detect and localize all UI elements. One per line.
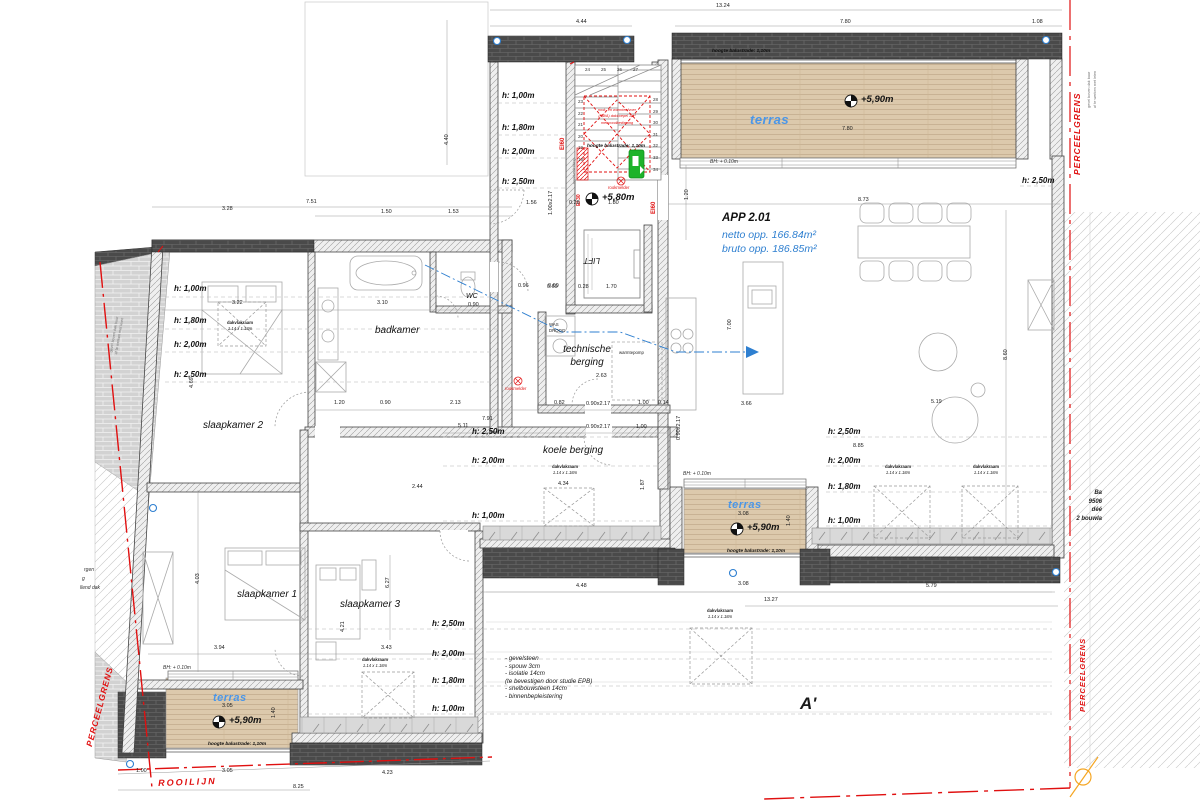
roof-window-label: dakvlakraam xyxy=(698,608,742,613)
dim-label-v: 6.27 xyxy=(385,577,391,588)
height-label: h: 1,00m xyxy=(472,511,504,520)
adjacent-roof-outline xyxy=(305,2,488,176)
dim-label: 0.96 xyxy=(518,283,529,289)
facade-marker-icon xyxy=(730,570,737,577)
stair-numbers-right: 28293031323334 xyxy=(653,94,658,175)
perceelgrens-right-top: PERCEELGRENS xyxy=(1072,93,1082,175)
room-koele-berging: koele berging xyxy=(543,445,603,456)
dim-label: 4.48 xyxy=(576,583,587,589)
roof-window-size: 1.14 x 1.18m xyxy=(876,470,920,475)
balustrade-note-1: hoogte balustrade: 1,10m xyxy=(712,49,770,54)
stair-numbers-left: 232221201918 xyxy=(578,96,583,166)
roof-window-size: 1.14 x 1.18m xyxy=(218,326,262,331)
rooilijn-label: ROOILIJN xyxy=(158,776,217,788)
dim-label: 3.05 xyxy=(222,768,233,774)
level-terras2: +5,90m xyxy=(747,522,780,533)
facade-marker-icon xyxy=(127,761,134,768)
dim-label: 3.43 xyxy=(381,645,392,651)
dim-label: 3.94 xyxy=(214,645,225,651)
dim-label: 8.85 xyxy=(853,443,864,449)
perceelgrens-right-bottom: PERCEELGRENS xyxy=(1078,638,1087,712)
boundary-note: af te werken met leien xyxy=(1093,71,1097,108)
bh-note-1: BH: + 0.10m xyxy=(710,159,738,165)
dim-label: 1.56 xyxy=(526,200,537,206)
room-technische-berging-1: technische xyxy=(552,344,622,355)
height-label: h: 2,00m xyxy=(502,147,534,156)
rookmelder-label: rookmelder xyxy=(608,185,630,190)
balustrade-top xyxy=(680,60,1016,63)
dim-label: 1.00 xyxy=(638,400,649,406)
bh-note-2: BH: + 0.10m xyxy=(683,471,711,477)
level-terras3: +5,90m xyxy=(229,715,262,726)
room-slaapkamer1: slaapkamer 1 xyxy=(237,589,297,600)
height-label: h: 2,00m xyxy=(828,456,860,465)
elevation-symbol-terras1 xyxy=(845,95,857,107)
room-slaapkamer2: slaapkamer 2 xyxy=(203,420,263,431)
dim-label: 3.28 xyxy=(222,206,233,212)
exit-sign-icon xyxy=(629,150,644,178)
fire-rating-ei60: EI60 xyxy=(560,138,566,150)
height-label: h: 2,00m xyxy=(432,649,464,658)
dim-label: 0.60 xyxy=(547,284,558,290)
dim-label: 3.10 xyxy=(377,300,388,306)
balustrade-note-4: hoogte balustrade: 1,10m xyxy=(208,742,266,747)
dim-label-v: 1.40 xyxy=(271,707,277,718)
dim-label-v: 1.87 xyxy=(640,479,646,490)
wc-width: 0.90 xyxy=(468,302,479,308)
elevation-symbol-terras2 xyxy=(731,523,743,535)
balustrade-bottom xyxy=(166,749,298,752)
height-label: h: 2,50m xyxy=(432,619,464,628)
dim-label-v: 4.40 xyxy=(444,134,450,145)
balustrade-note-2: hoogte balustrade: 1,10m xyxy=(585,144,647,149)
dim-label: 3.05 xyxy=(222,703,233,709)
roof-window-size: 1.14 x 1.18m xyxy=(353,663,397,668)
dim-label: 0.90x2.17 xyxy=(586,424,610,430)
dim-label: 8.25 xyxy=(293,784,304,790)
terras-label-mid: terras xyxy=(728,499,762,511)
dim-label: 1.00 xyxy=(636,424,647,430)
clipped-text: rgen xyxy=(84,567,94,573)
fire-rating-ei60: EI60 xyxy=(651,202,657,214)
dim-label: 13.27 xyxy=(764,597,778,603)
level-terras1: +5,90m xyxy=(861,94,894,105)
height-label: h: 1,00m xyxy=(174,284,206,293)
dim-label: 0.90 xyxy=(380,400,391,406)
boundary-note: gevel boven dak buur xyxy=(1087,72,1091,108)
roof-window-label: dakvlakraam xyxy=(964,464,1008,469)
dim-label: 3.08 xyxy=(738,581,749,587)
dim-label: 7.80 xyxy=(840,19,851,25)
roof-window-label: dakvlakraam xyxy=(543,464,587,469)
rwa-note: rook- en warmteafvoer(RWA) dakkoepel 1m²… xyxy=(587,107,647,126)
dim-label: 1.20 xyxy=(334,400,345,406)
dim-label: 7.51 xyxy=(306,199,317,205)
dim-label-v: 0.90x2.17 xyxy=(676,416,682,440)
room-wc: WC xyxy=(466,293,478,300)
dim-label: 4.23 xyxy=(382,770,393,776)
facade-marker-icon xyxy=(1043,37,1050,44)
dim-label-v: 4.21 xyxy=(340,621,346,632)
floor-plan-page: APP 2.01 netto opp. 166.84m² bruto opp. … xyxy=(0,0,1200,800)
dim-label: 2.44 xyxy=(412,484,423,490)
facade-marker-icon xyxy=(494,38,501,45)
height-label: h: 1,80m xyxy=(502,123,534,132)
height-label: h: 1,80m xyxy=(828,482,860,491)
facade-marker-icon xyxy=(624,37,631,44)
balustrade-note-3: hoogte balustrade: 1,10m xyxy=(727,549,785,554)
rookmelder-label: rookmelder xyxy=(505,386,527,391)
roof-window-label: dakvlakraam xyxy=(876,464,920,469)
elevation-symbol-terras3 xyxy=(213,716,225,728)
dim-label: 3.66 xyxy=(741,401,752,407)
smoke-detector-icon xyxy=(514,377,522,385)
facade-marker-icon xyxy=(150,505,157,512)
dim-label: 0.82 xyxy=(554,400,565,406)
elevation-symbol-hal xyxy=(586,193,598,205)
dim-label: 5.79 xyxy=(926,583,937,589)
was-label: WAS xyxy=(549,322,559,327)
roof-window-size: 1.14 x 1.18m xyxy=(543,470,587,475)
roof-window-label: dakvlakraam xyxy=(353,657,397,662)
stair-numbers-top: 24252627 xyxy=(585,67,638,72)
room-badkamer: badkamer xyxy=(375,325,419,336)
height-label: h: 2,50m xyxy=(502,177,534,186)
gross-area: bruto opp. 186.85m² xyxy=(722,243,817,255)
dim-label: 0.14 xyxy=(658,400,669,406)
height-label: h: 2,00m xyxy=(174,340,206,349)
dim-label: 1.08 xyxy=(1032,19,1043,25)
dim-label-v: 4.69 xyxy=(189,377,195,388)
dim-label: 0.90x2.17 xyxy=(586,401,610,407)
room-slaapkamer3: slaapkamer 3 xyxy=(340,599,400,610)
height-label: h: 1,00m xyxy=(502,91,534,100)
dim-label: 1.70 xyxy=(606,284,617,290)
construction-notes: - gevelsteen- spouw 3cm- isolatie 14cm(t… xyxy=(505,655,592,701)
dim-label: 0.28 xyxy=(578,284,589,290)
roof-window-size: 1.14 x 1.18m xyxy=(698,614,742,619)
dim-label: 3.08 xyxy=(738,511,749,517)
clipped-text: llend dak xyxy=(80,585,100,591)
room-lift: LIFT xyxy=(584,256,600,265)
dim-label-v: 1.00x2.17 xyxy=(548,191,554,215)
dim-label: 2.63 xyxy=(596,373,607,379)
balustrade-mid xyxy=(684,554,806,557)
dim-label: 1.80 xyxy=(608,200,619,206)
dim-label: 1.00 xyxy=(136,768,147,774)
dim-label: 4.34 xyxy=(558,481,569,487)
dim-label: 2.13 xyxy=(450,400,461,406)
dim-label: 7.80 xyxy=(842,126,853,132)
dim-label: 7.91 xyxy=(482,416,493,422)
dim-label: 4.44 xyxy=(576,19,587,25)
clipped-text: g xyxy=(82,576,85,582)
neighbour-note: Ba9506déé2 bouwla xyxy=(1068,489,1102,523)
height-label: h: 2,50m xyxy=(1022,176,1054,185)
dim-label: 5.19 xyxy=(931,399,942,405)
dim-label: 5.11 xyxy=(458,423,468,429)
dim-label-v: 1.20 xyxy=(684,189,690,200)
section-marker: A' xyxy=(800,694,816,714)
droog-label: DROOG xyxy=(549,328,565,333)
warmtepomp-label: warmtepomp xyxy=(619,350,644,355)
apartment-title: APP 2.01 xyxy=(722,212,771,224)
dim-label-v: 4.03 xyxy=(195,573,201,584)
height-label: h: 1,00m xyxy=(828,516,860,525)
height-label: h: 2,50m xyxy=(828,427,860,436)
dim-label: 13.24 xyxy=(716,3,730,9)
dim-label-v: 8.60 xyxy=(1003,349,1009,360)
height-label: h: 1,00m xyxy=(432,704,464,713)
room-technische-berging-2: berging xyxy=(552,357,622,368)
dim-label: 1.53 xyxy=(448,209,459,215)
dim-label-v: 7.00 xyxy=(727,319,733,330)
dim-label: 0.28 xyxy=(569,200,580,206)
roof-window-label: dakvlakraam xyxy=(218,320,262,325)
roof-window-size: 1.14 x 1.18m xyxy=(964,470,1008,475)
dim-label: 1.50 xyxy=(381,209,392,215)
height-label: h: 1,80m xyxy=(174,316,206,325)
dim-label: 3.22 xyxy=(232,300,243,306)
height-label: h: 2,00m xyxy=(472,456,504,465)
net-area: netto opp. 166.84m² xyxy=(722,229,816,241)
bh-note-3: BH: + 0.10m xyxy=(163,665,191,671)
height-label: h: 2,50m xyxy=(472,427,504,436)
dim-label-v: 1.40 xyxy=(786,515,792,526)
dim-label: 8.73 xyxy=(858,197,869,203)
height-label: h: 1,80m xyxy=(432,676,464,685)
terras-label-north: terras xyxy=(750,112,789,127)
noodverlichting-label: noodverlichting xyxy=(572,158,576,184)
facade-marker-icon xyxy=(1053,569,1060,576)
